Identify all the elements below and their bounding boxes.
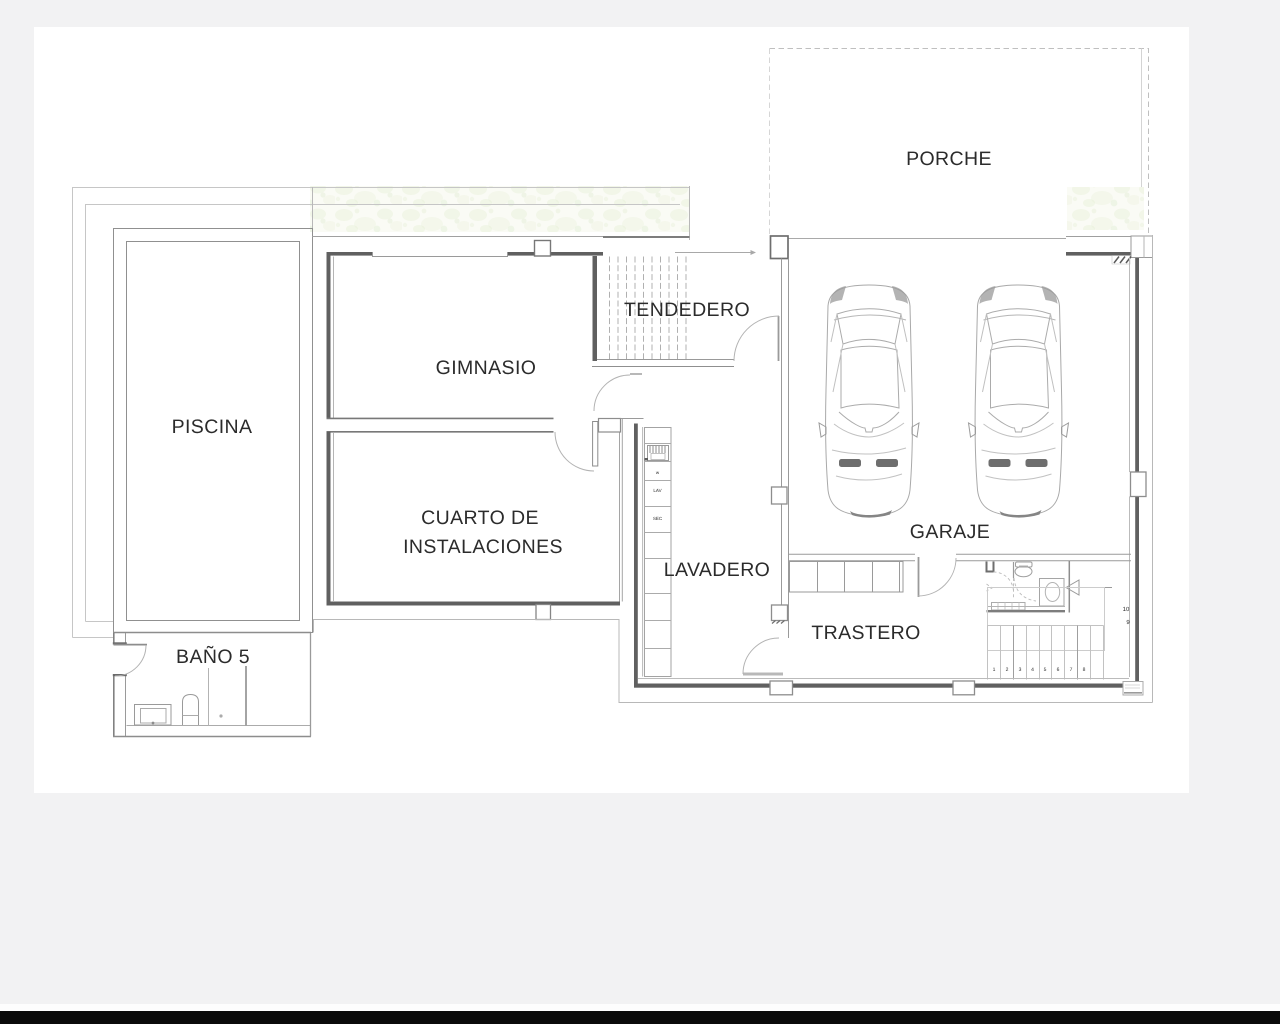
svg-text:GIMNASIO: GIMNASIO bbox=[436, 357, 537, 379]
svg-text:PISCINA: PISCINA bbox=[172, 416, 253, 438]
svg-text:7: 7 bbox=[1070, 667, 1073, 673]
svg-text:6: 6 bbox=[1057, 667, 1060, 673]
svg-text:TRASTERO: TRASTERO bbox=[811, 622, 920, 644]
svg-text:SEC: SEC bbox=[653, 516, 663, 521]
svg-text:4: 4 bbox=[1031, 667, 1034, 673]
svg-text:3: 3 bbox=[1019, 667, 1022, 673]
svg-text:PORCHE: PORCHE bbox=[906, 148, 992, 170]
svg-text:8: 8 bbox=[1083, 667, 1086, 673]
svg-text:INSTALACIONES: INSTALACIONES bbox=[403, 536, 563, 558]
svg-text:BAÑO 5: BAÑO 5 bbox=[176, 645, 250, 668]
svg-text:2: 2 bbox=[1006, 667, 1009, 673]
svg-text:LAV: LAV bbox=[653, 488, 661, 493]
svg-text:5: 5 bbox=[1044, 667, 1047, 673]
svg-text:LAVADERO: LAVADERO bbox=[664, 559, 771, 581]
svg-text:GARAJE: GARAJE bbox=[910, 521, 990, 543]
svg-text:1: 1 bbox=[993, 667, 996, 673]
svg-text:CUARTO DE: CUARTO DE bbox=[421, 507, 539, 529]
svg-text:10: 10 bbox=[1123, 606, 1130, 613]
svg-text:TENDEDERO: TENDEDERO bbox=[624, 299, 750, 321]
